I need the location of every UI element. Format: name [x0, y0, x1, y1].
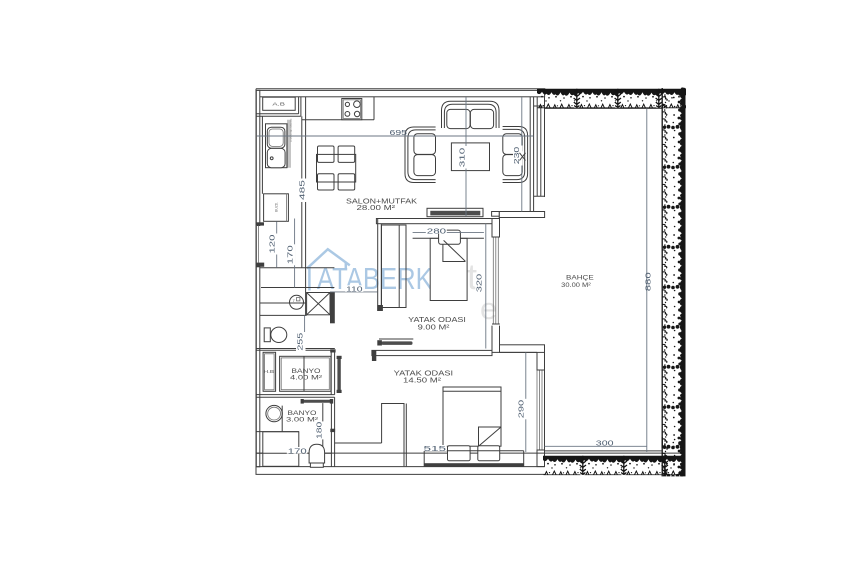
svg-text:4.00 M²: 4.00 M² [290, 374, 322, 381]
svg-text:110: 110 [346, 284, 363, 293]
svg-text:320: 320 [474, 274, 483, 292]
svg-text:880: 880 [644, 272, 653, 291]
svg-text:230: 230 [512, 147, 521, 165]
svg-text:3.00 M²: 3.00 M² [286, 417, 318, 424]
svg-text:14.50 M²: 14.50 M² [403, 378, 442, 385]
svg-text:YATAK ODASI: YATAK ODASI [394, 370, 454, 377]
svg-text:A.B: A.B [272, 101, 285, 106]
svg-text:BUZD.: BUZD. [275, 202, 279, 212]
svg-text:515: 515 [424, 444, 447, 453]
svg-text:170: 170 [288, 447, 307, 456]
svg-text:120: 120 [268, 235, 277, 254]
svg-text:YATAK ODASI: YATAK ODASI [408, 317, 466, 324]
svg-text:485: 485 [298, 180, 307, 200]
svg-text:28.00 M²: 28.00 M² [357, 205, 396, 212]
svg-text:255: 255 [295, 333, 304, 351]
svg-text:9.00 M²: 9.00 M² [418, 325, 451, 332]
svg-text:30.00 M²: 30.00 M² [561, 282, 591, 289]
svg-text:ATABERK: ATABERK [317, 261, 433, 296]
svg-text:290: 290 [517, 400, 526, 419]
svg-text:300: 300 [596, 438, 614, 447]
svg-text:e: e [480, 291, 497, 326]
svg-text:695: 695 [390, 128, 408, 137]
svg-text:170: 170 [286, 245, 295, 264]
svg-text:180: 180 [315, 422, 324, 439]
svg-text:BAHÇE: BAHÇE [566, 275, 594, 282]
svg-text:H.B: H.B [264, 369, 275, 374]
svg-text:280: 280 [427, 226, 446, 235]
svg-text:310: 310 [457, 148, 466, 168]
svg-text:1.20x0.60: 1.20x0.60 [289, 118, 293, 131]
